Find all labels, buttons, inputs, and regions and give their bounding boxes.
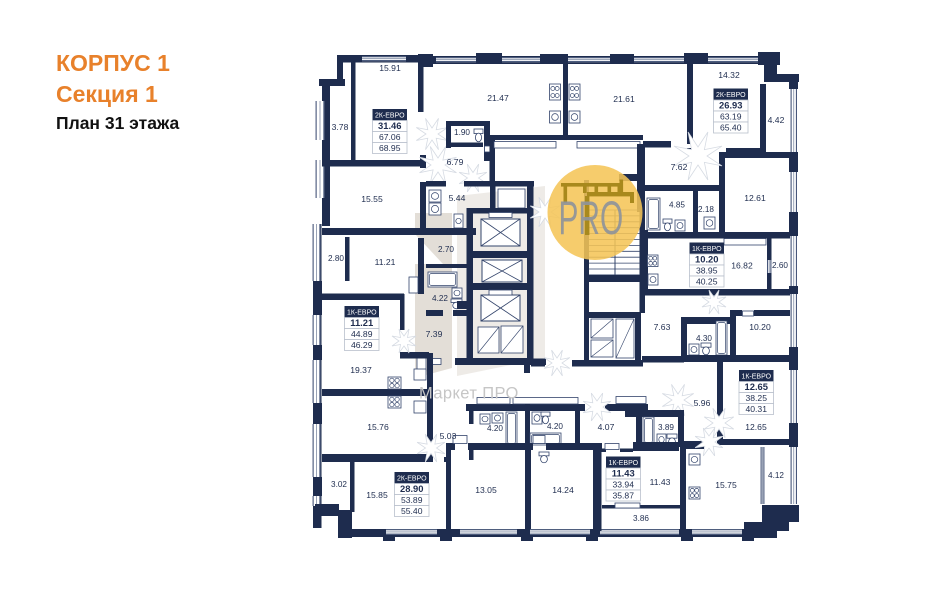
svg-text:4.85: 4.85 bbox=[669, 201, 685, 210]
svg-text:4.42: 4.42 bbox=[768, 115, 785, 125]
svg-text:26.93: 26.93 bbox=[719, 100, 742, 111]
svg-text:11.43: 11.43 bbox=[612, 468, 635, 479]
svg-text:15.85: 15.85 bbox=[366, 490, 388, 500]
svg-text:15.91: 15.91 bbox=[379, 63, 401, 73]
svg-text:10.20: 10.20 bbox=[695, 254, 718, 265]
svg-text:12.65: 12.65 bbox=[745, 381, 768, 392]
svg-text:53.89: 53.89 bbox=[401, 495, 423, 505]
svg-text:46.29: 46.29 bbox=[351, 340, 373, 350]
svg-text:1К-ЕВРО: 1К-ЕВРО bbox=[347, 309, 377, 316]
svg-text:13.05: 13.05 bbox=[475, 485, 497, 495]
svg-text:План 31 этажа: План 31 этажа bbox=[56, 113, 180, 133]
svg-text:38.95: 38.95 bbox=[696, 265, 718, 275]
svg-text:11.21: 11.21 bbox=[375, 257, 396, 267]
svg-text:4.30: 4.30 bbox=[696, 334, 712, 343]
svg-text:38.25: 38.25 bbox=[745, 393, 767, 403]
svg-text:35.87: 35.87 bbox=[612, 490, 634, 500]
svg-text:21.61: 21.61 bbox=[613, 94, 635, 104]
svg-text:4.20: 4.20 bbox=[547, 422, 563, 431]
svg-text:19.37: 19.37 bbox=[350, 365, 372, 375]
svg-text:16.82: 16.82 bbox=[731, 261, 753, 271]
svg-text:3.86: 3.86 bbox=[633, 514, 649, 523]
svg-text:3.02: 3.02 bbox=[331, 480, 347, 489]
svg-text:14.24: 14.24 bbox=[552, 485, 574, 495]
svg-text:КОРПУС 1: КОРПУС 1 bbox=[56, 50, 170, 76]
svg-text:5.96: 5.96 bbox=[694, 398, 711, 408]
svg-text:4.07: 4.07 bbox=[598, 422, 615, 432]
svg-text:40.25: 40.25 bbox=[696, 276, 718, 286]
svg-text:63.19: 63.19 bbox=[720, 111, 742, 121]
svg-text:44.89: 44.89 bbox=[351, 329, 373, 339]
svg-text:65.40: 65.40 bbox=[720, 122, 742, 132]
svg-text:11.21: 11.21 bbox=[350, 317, 373, 328]
svg-text:7.39: 7.39 bbox=[426, 329, 443, 339]
svg-text:2К-ЕВРО: 2К-ЕВРО bbox=[397, 475, 427, 482]
svg-text:4.22: 4.22 bbox=[432, 294, 448, 303]
svg-text:10.20: 10.20 bbox=[749, 322, 771, 332]
svg-text:68.95: 68.95 bbox=[379, 143, 401, 153]
svg-text:15.55: 15.55 bbox=[361, 194, 383, 204]
svg-text:1К-ЕВРО: 1К-ЕВРО bbox=[608, 460, 638, 467]
svg-text:1.90: 1.90 bbox=[454, 128, 470, 137]
svg-text:2.70: 2.70 bbox=[438, 245, 454, 254]
svg-text:15.76: 15.76 bbox=[367, 422, 389, 432]
svg-text:6.79: 6.79 bbox=[447, 157, 464, 167]
svg-text:2.80: 2.80 bbox=[328, 254, 344, 263]
svg-text:12.61: 12.61 bbox=[744, 193, 766, 203]
svg-text:2.60: 2.60 bbox=[772, 261, 788, 270]
svg-text:14.32: 14.32 bbox=[718, 70, 740, 80]
svg-text:5.44: 5.44 bbox=[449, 193, 466, 203]
svg-text:7.62: 7.62 bbox=[671, 162, 688, 172]
svg-text:11.43: 11.43 bbox=[650, 477, 671, 487]
svg-text:55.40: 55.40 bbox=[401, 506, 423, 516]
svg-text:3.78: 3.78 bbox=[332, 122, 349, 132]
svg-text:1К-ЕВРО: 1К-ЕВРО bbox=[692, 246, 722, 253]
svg-text:4.20: 4.20 bbox=[487, 424, 503, 433]
svg-text:21.47: 21.47 bbox=[487, 93, 509, 103]
svg-text:4.12: 4.12 bbox=[768, 471, 784, 480]
svg-text:2К-ЕВРО: 2К-ЕВРО bbox=[716, 92, 746, 99]
svg-text:2К-ЕВРО: 2К-ЕВРО bbox=[375, 112, 405, 119]
svg-text:1К-ЕВРО: 1К-ЕВРО bbox=[741, 373, 771, 380]
svg-text:15.75: 15.75 bbox=[715, 480, 737, 490]
svg-text:31.46: 31.46 bbox=[378, 120, 401, 131]
svg-text:Секция 1: Секция 1 bbox=[56, 81, 158, 107]
svg-text:PRO: PRO bbox=[559, 192, 624, 245]
svg-text:28.90: 28.90 bbox=[400, 483, 423, 494]
svg-text:33.94: 33.94 bbox=[612, 479, 634, 489]
svg-text:40.31: 40.31 bbox=[745, 404, 767, 414]
svg-text:7.63: 7.63 bbox=[654, 322, 671, 332]
svg-text:5.03: 5.03 bbox=[440, 431, 457, 441]
svg-text:Маркет ПРО: Маркет ПРО bbox=[419, 385, 519, 403]
svg-text:2.18: 2.18 bbox=[698, 205, 714, 214]
svg-text:67.06: 67.06 bbox=[379, 132, 401, 142]
svg-text:12.65: 12.65 bbox=[745, 422, 767, 432]
svg-text:3.89: 3.89 bbox=[658, 423, 674, 432]
